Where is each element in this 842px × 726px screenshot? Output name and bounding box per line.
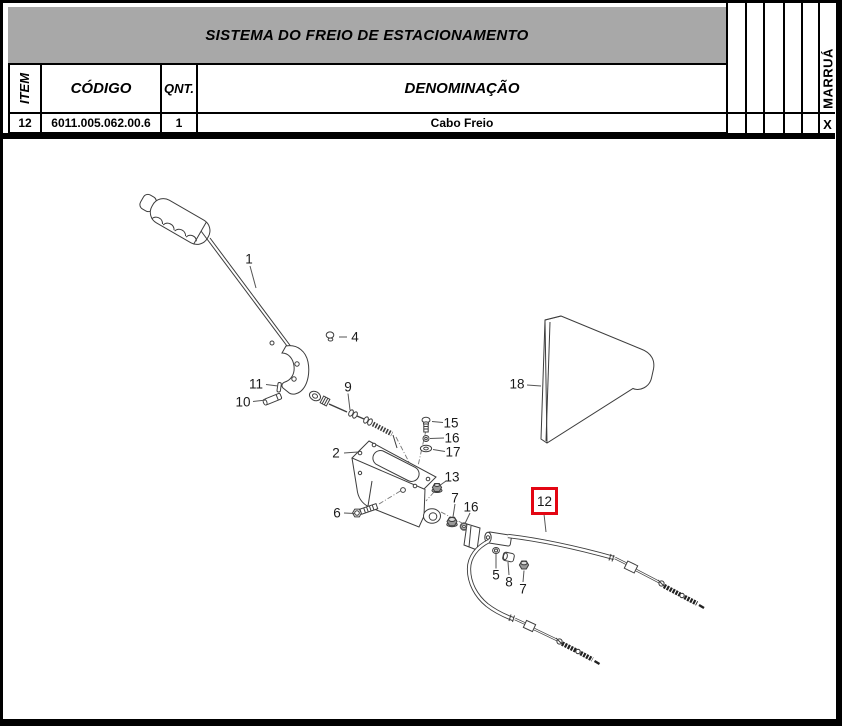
- callout-10: 10: [235, 395, 250, 410]
- callout-17: 17: [445, 445, 460, 460]
- callout-9: 9: [344, 380, 352, 395]
- anchor-plate-drawing: [541, 316, 654, 443]
- front-cable-drawing: [308, 389, 397, 448]
- callout-15: 15: [443, 416, 458, 431]
- callout-7a: 7: [451, 491, 459, 506]
- exploded-diagram: [0, 0, 842, 726]
- callout-8: 8: [505, 575, 513, 590]
- callout-7b: 7: [519, 582, 527, 597]
- callout-1: 1: [245, 252, 253, 267]
- callout-5: 5: [492, 568, 500, 583]
- callout-13: 13: [444, 470, 459, 485]
- button-bolt-drawing: [326, 332, 334, 341]
- callout-2: 2: [332, 446, 340, 461]
- callout-4: 4: [351, 330, 359, 345]
- callout-6: 6: [333, 506, 341, 521]
- highlight-box-item-12: 12: [531, 487, 558, 515]
- callout-18: 18: [509, 377, 524, 392]
- hand-lever-drawing: [136, 188, 309, 394]
- callout-16a: 16: [444, 431, 459, 446]
- catalog-page: SISTEMA DO FREIO DE ESTACIONAMENTO ITEM …: [0, 0, 842, 726]
- callout-16b: 16: [463, 500, 478, 515]
- clevis-pins-drawing: [262, 382, 282, 405]
- callout-11: 11: [249, 377, 263, 392]
- mounting-bracket-drawing: [352, 441, 441, 527]
- callout-12: 12: [537, 494, 552, 509]
